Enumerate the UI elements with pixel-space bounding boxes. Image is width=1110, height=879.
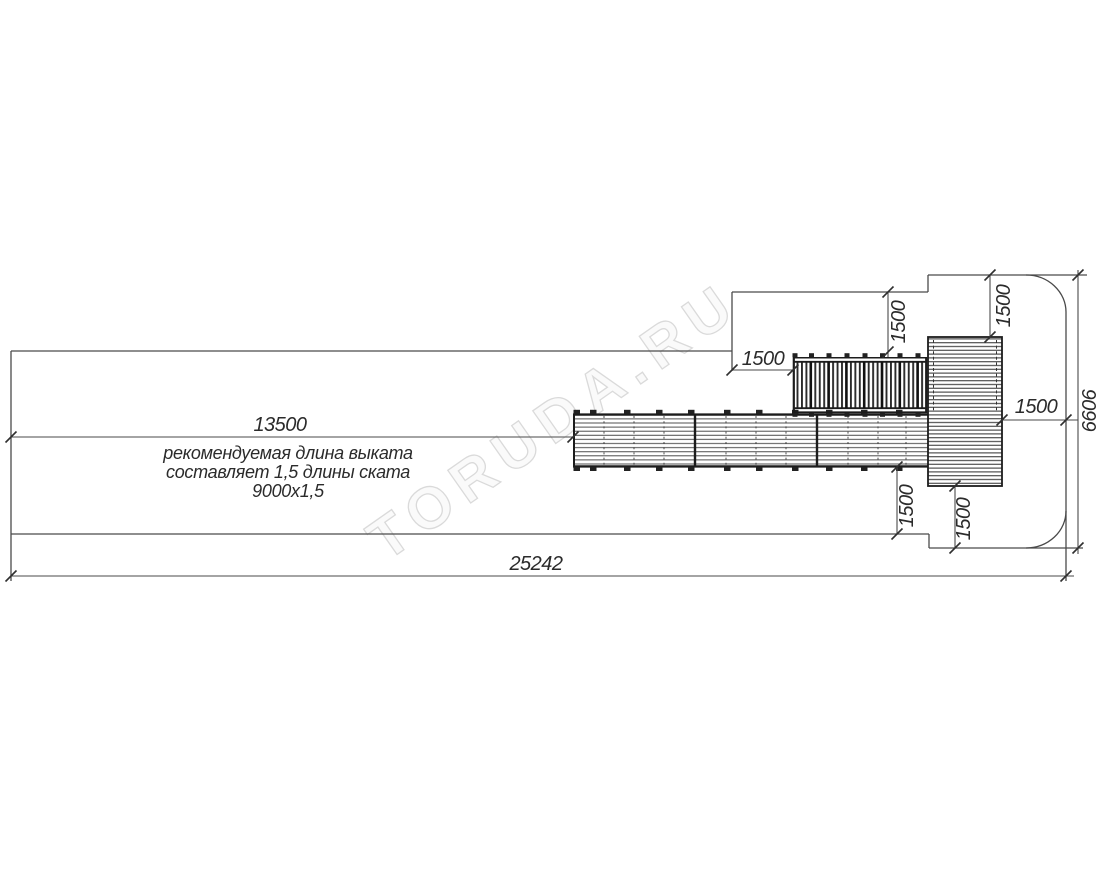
ramp-feet-bottom bbox=[574, 467, 903, 471]
dim-text-runout-length: 13500 bbox=[253, 414, 306, 436]
slide-ramp bbox=[573, 410, 928, 471]
dim-text-total-length: 25242 bbox=[508, 553, 562, 575]
platform-deck bbox=[928, 337, 1002, 486]
note-line-3: 9000х1,5 bbox=[252, 481, 325, 501]
note-line-1: рекомендуемая длина выката bbox=[162, 443, 413, 463]
ladder-section bbox=[793, 353, 928, 417]
dim-text-clearance-platform-top: 1500 bbox=[993, 284, 1015, 327]
ramp-deck bbox=[573, 414, 928, 467]
zone-corner-arc-bottom bbox=[1026, 511, 1066, 548]
start-platform bbox=[928, 337, 1002, 486]
ladder-feet-top bbox=[793, 353, 921, 357]
note-line-2: составляет 1,5 длины ската bbox=[166, 462, 410, 482]
technical-drawing: TORUDA.RU bbox=[0, 0, 1110, 879]
dim-text-total-height: 6606 bbox=[1079, 388, 1101, 432]
dim-text-clearance-ladder-top: 1500 bbox=[888, 300, 910, 343]
dim-text-clearance-ladder-left: 1500 bbox=[742, 348, 785, 370]
drawing-sheet: TORUDA.RU bbox=[0, 0, 1110, 879]
ladder-rungs bbox=[793, 362, 927, 408]
dim-text-clearance-ramp-bottom: 1500 bbox=[896, 484, 918, 527]
dim-text-clearance-platform-right: 1500 bbox=[1015, 396, 1058, 418]
zone-corner-arc-top bbox=[1026, 275, 1066, 312]
dim-text-clearance-platform-bottom: 1500 bbox=[953, 497, 975, 540]
